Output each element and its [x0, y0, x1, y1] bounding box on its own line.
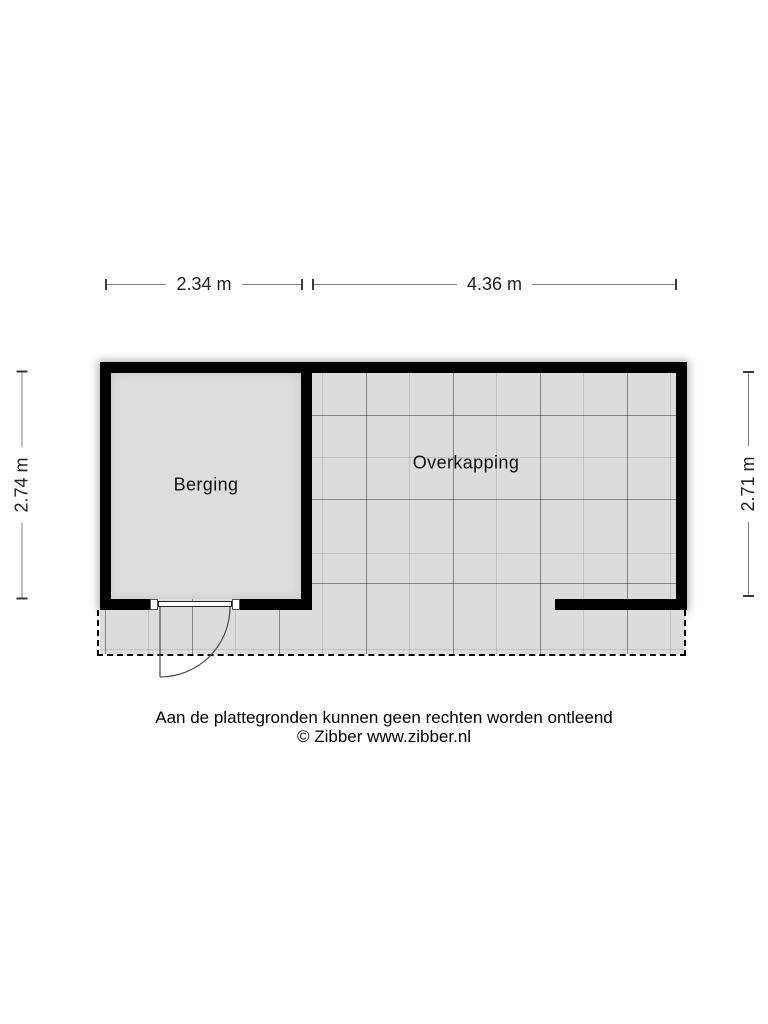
room-label-overkapping: Overkapping — [413, 453, 519, 474]
dimension-top-right: 4.36 m — [312, 273, 677, 295]
footer-disclaimer: Aan de plattegronden kunnen geen rechten… — [0, 708, 768, 727]
dimension-line — [748, 522, 749, 595]
dimension-tick — [743, 371, 754, 373]
wall-top — [100, 362, 687, 373]
wall-left — [100, 362, 111, 610]
dimension-tick — [743, 595, 754, 597]
dimension-label: 2.34 m — [166, 273, 241, 295]
room-label-berging: Berging — [174, 475, 239, 496]
dimension-tick — [301, 279, 303, 290]
door-swing-arc — [150, 599, 245, 684]
dimension-label: 2.74 m — [11, 447, 33, 522]
wall-right — [676, 362, 687, 610]
dimension-line — [21, 523, 22, 598]
footer-copyright: © Zibber www.zibber.nl — [0, 727, 768, 746]
dimension-line — [314, 284, 457, 285]
dimension-line — [748, 373, 749, 446]
dimension-label: 4.36 m — [457, 273, 532, 295]
dimension-tick — [16, 371, 27, 373]
dimension-line — [242, 284, 301, 285]
floor-plan-page: 2.34 m 4.36 m 2.74 m 2.71 m — [0, 0, 768, 1024]
dimension-tick — [16, 598, 27, 600]
dimension-right: 2.71 m — [737, 371, 759, 597]
dimension-tick — [675, 279, 677, 290]
dimension-line — [21, 373, 22, 448]
dimension-top-left: 2.34 m — [105, 273, 303, 295]
wall-berging-bottom-right — [240, 599, 312, 610]
wall-berging-bottom-left — [100, 599, 150, 610]
dimension-label: 2.71 m — [737, 446, 759, 521]
footer: Aan de plattegronden kunnen geen rechten… — [0, 708, 768, 746]
dimension-line — [532, 284, 675, 285]
wall-internal — [301, 362, 312, 610]
dimension-line — [107, 284, 166, 285]
dimension-left: 2.74 m — [11, 371, 33, 600]
wall-stub-bottom-right — [555, 599, 687, 610]
